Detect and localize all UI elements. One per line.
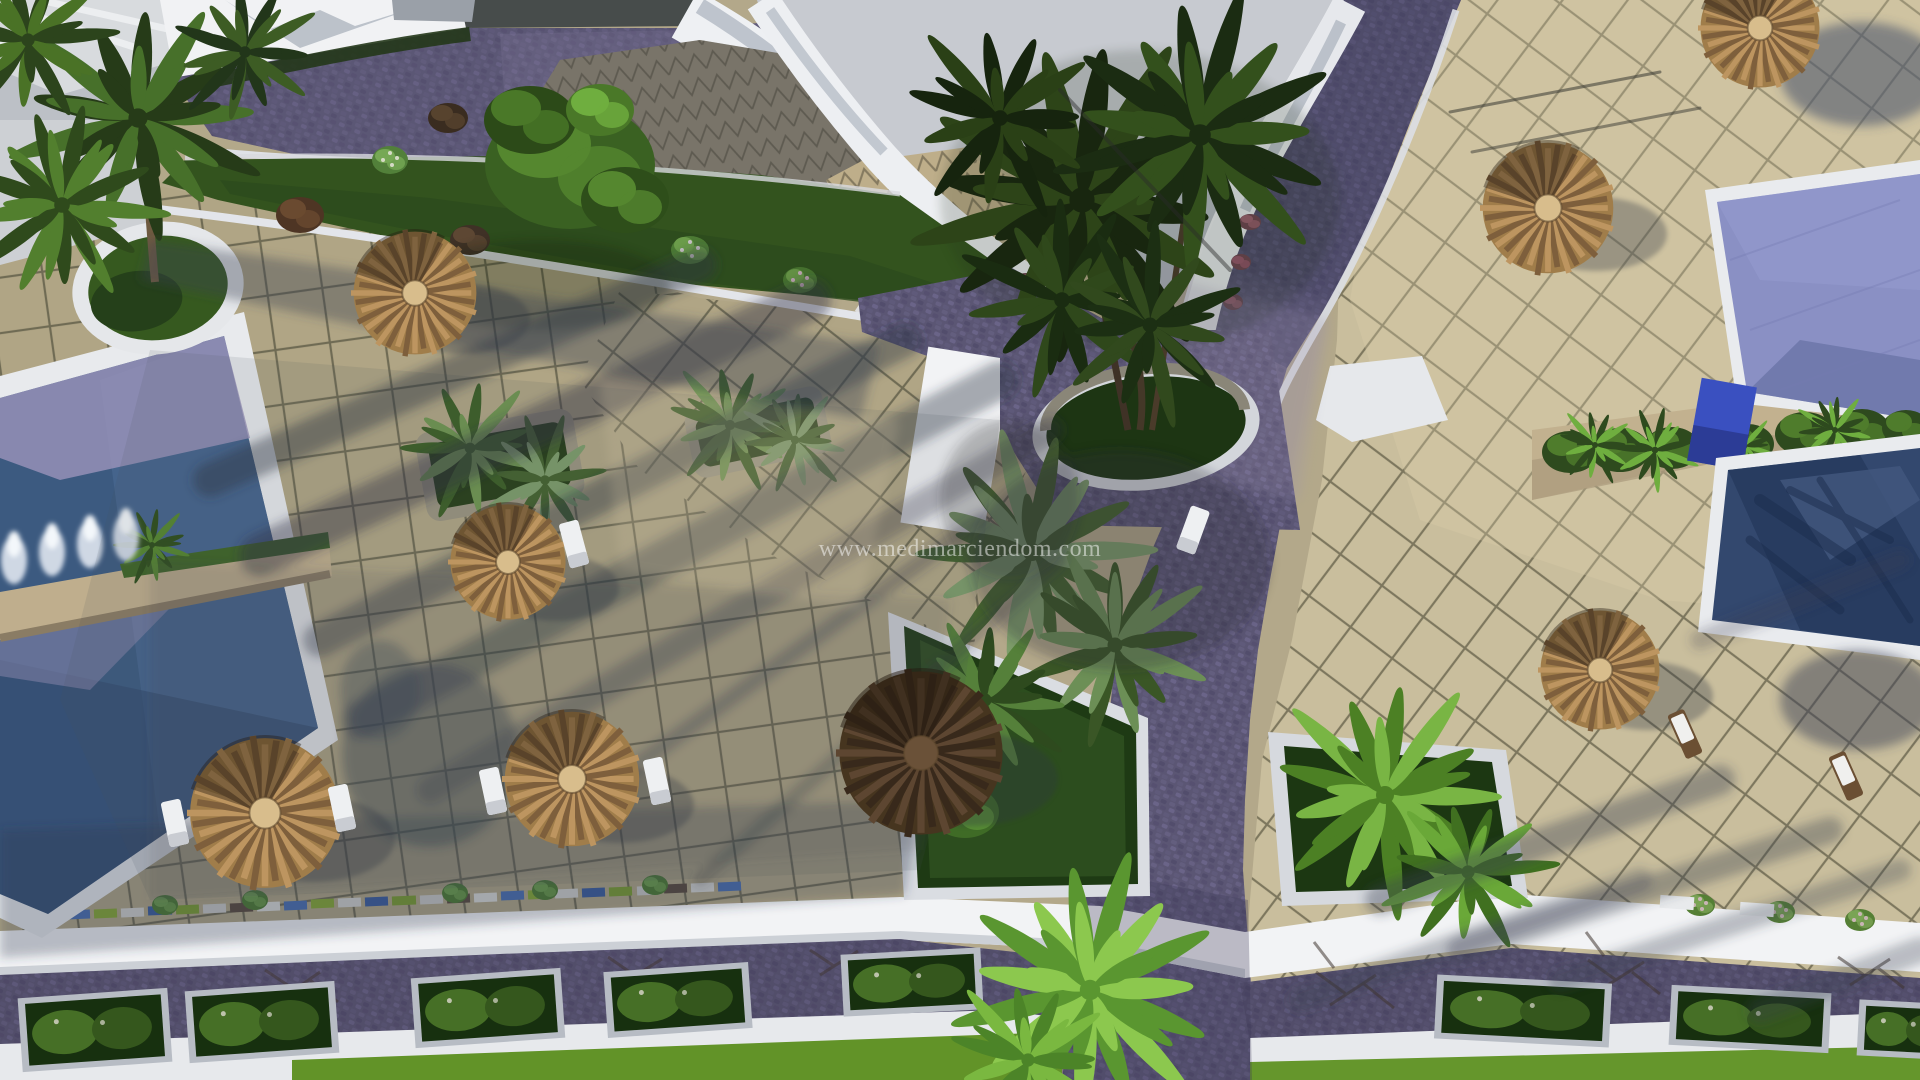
svg-text:www.medimarciendom.com: www.medimarciendom.com (819, 536, 1102, 562)
